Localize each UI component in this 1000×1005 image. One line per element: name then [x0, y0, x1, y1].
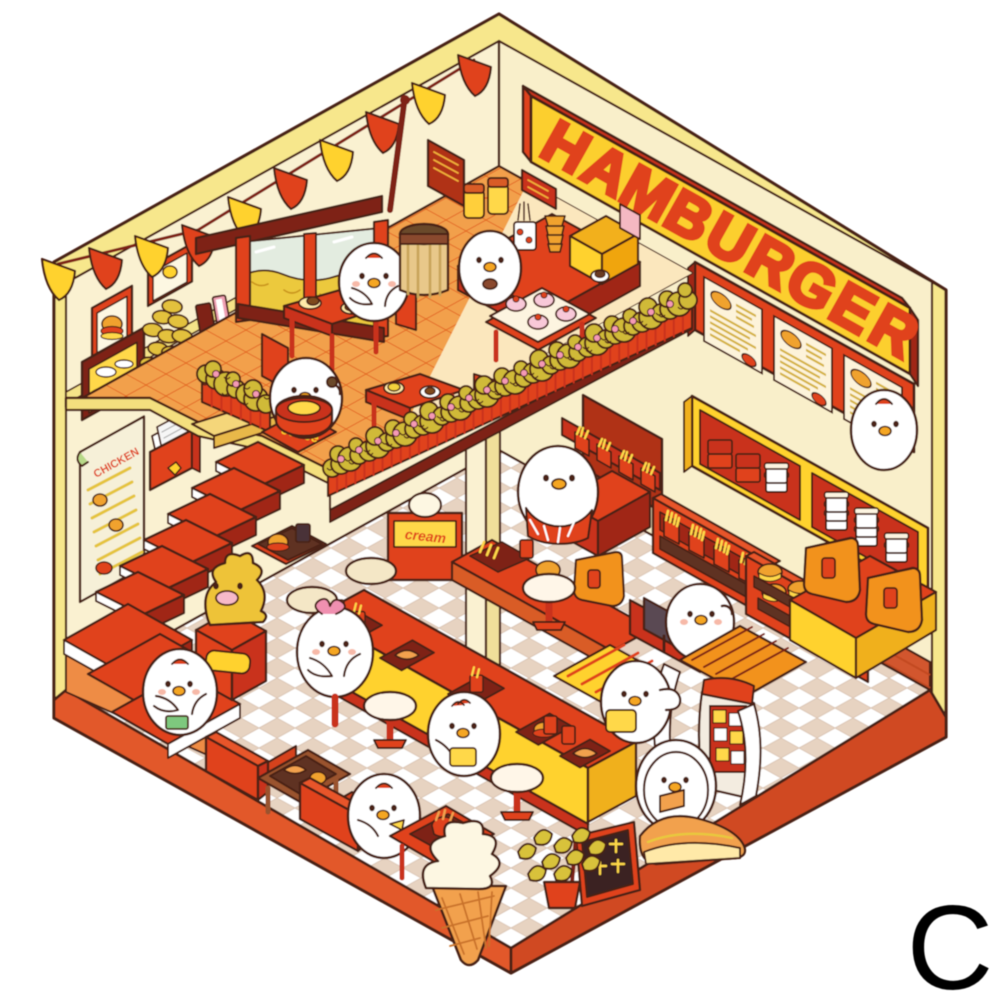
svg-text:C: C — [907, 881, 994, 1000]
